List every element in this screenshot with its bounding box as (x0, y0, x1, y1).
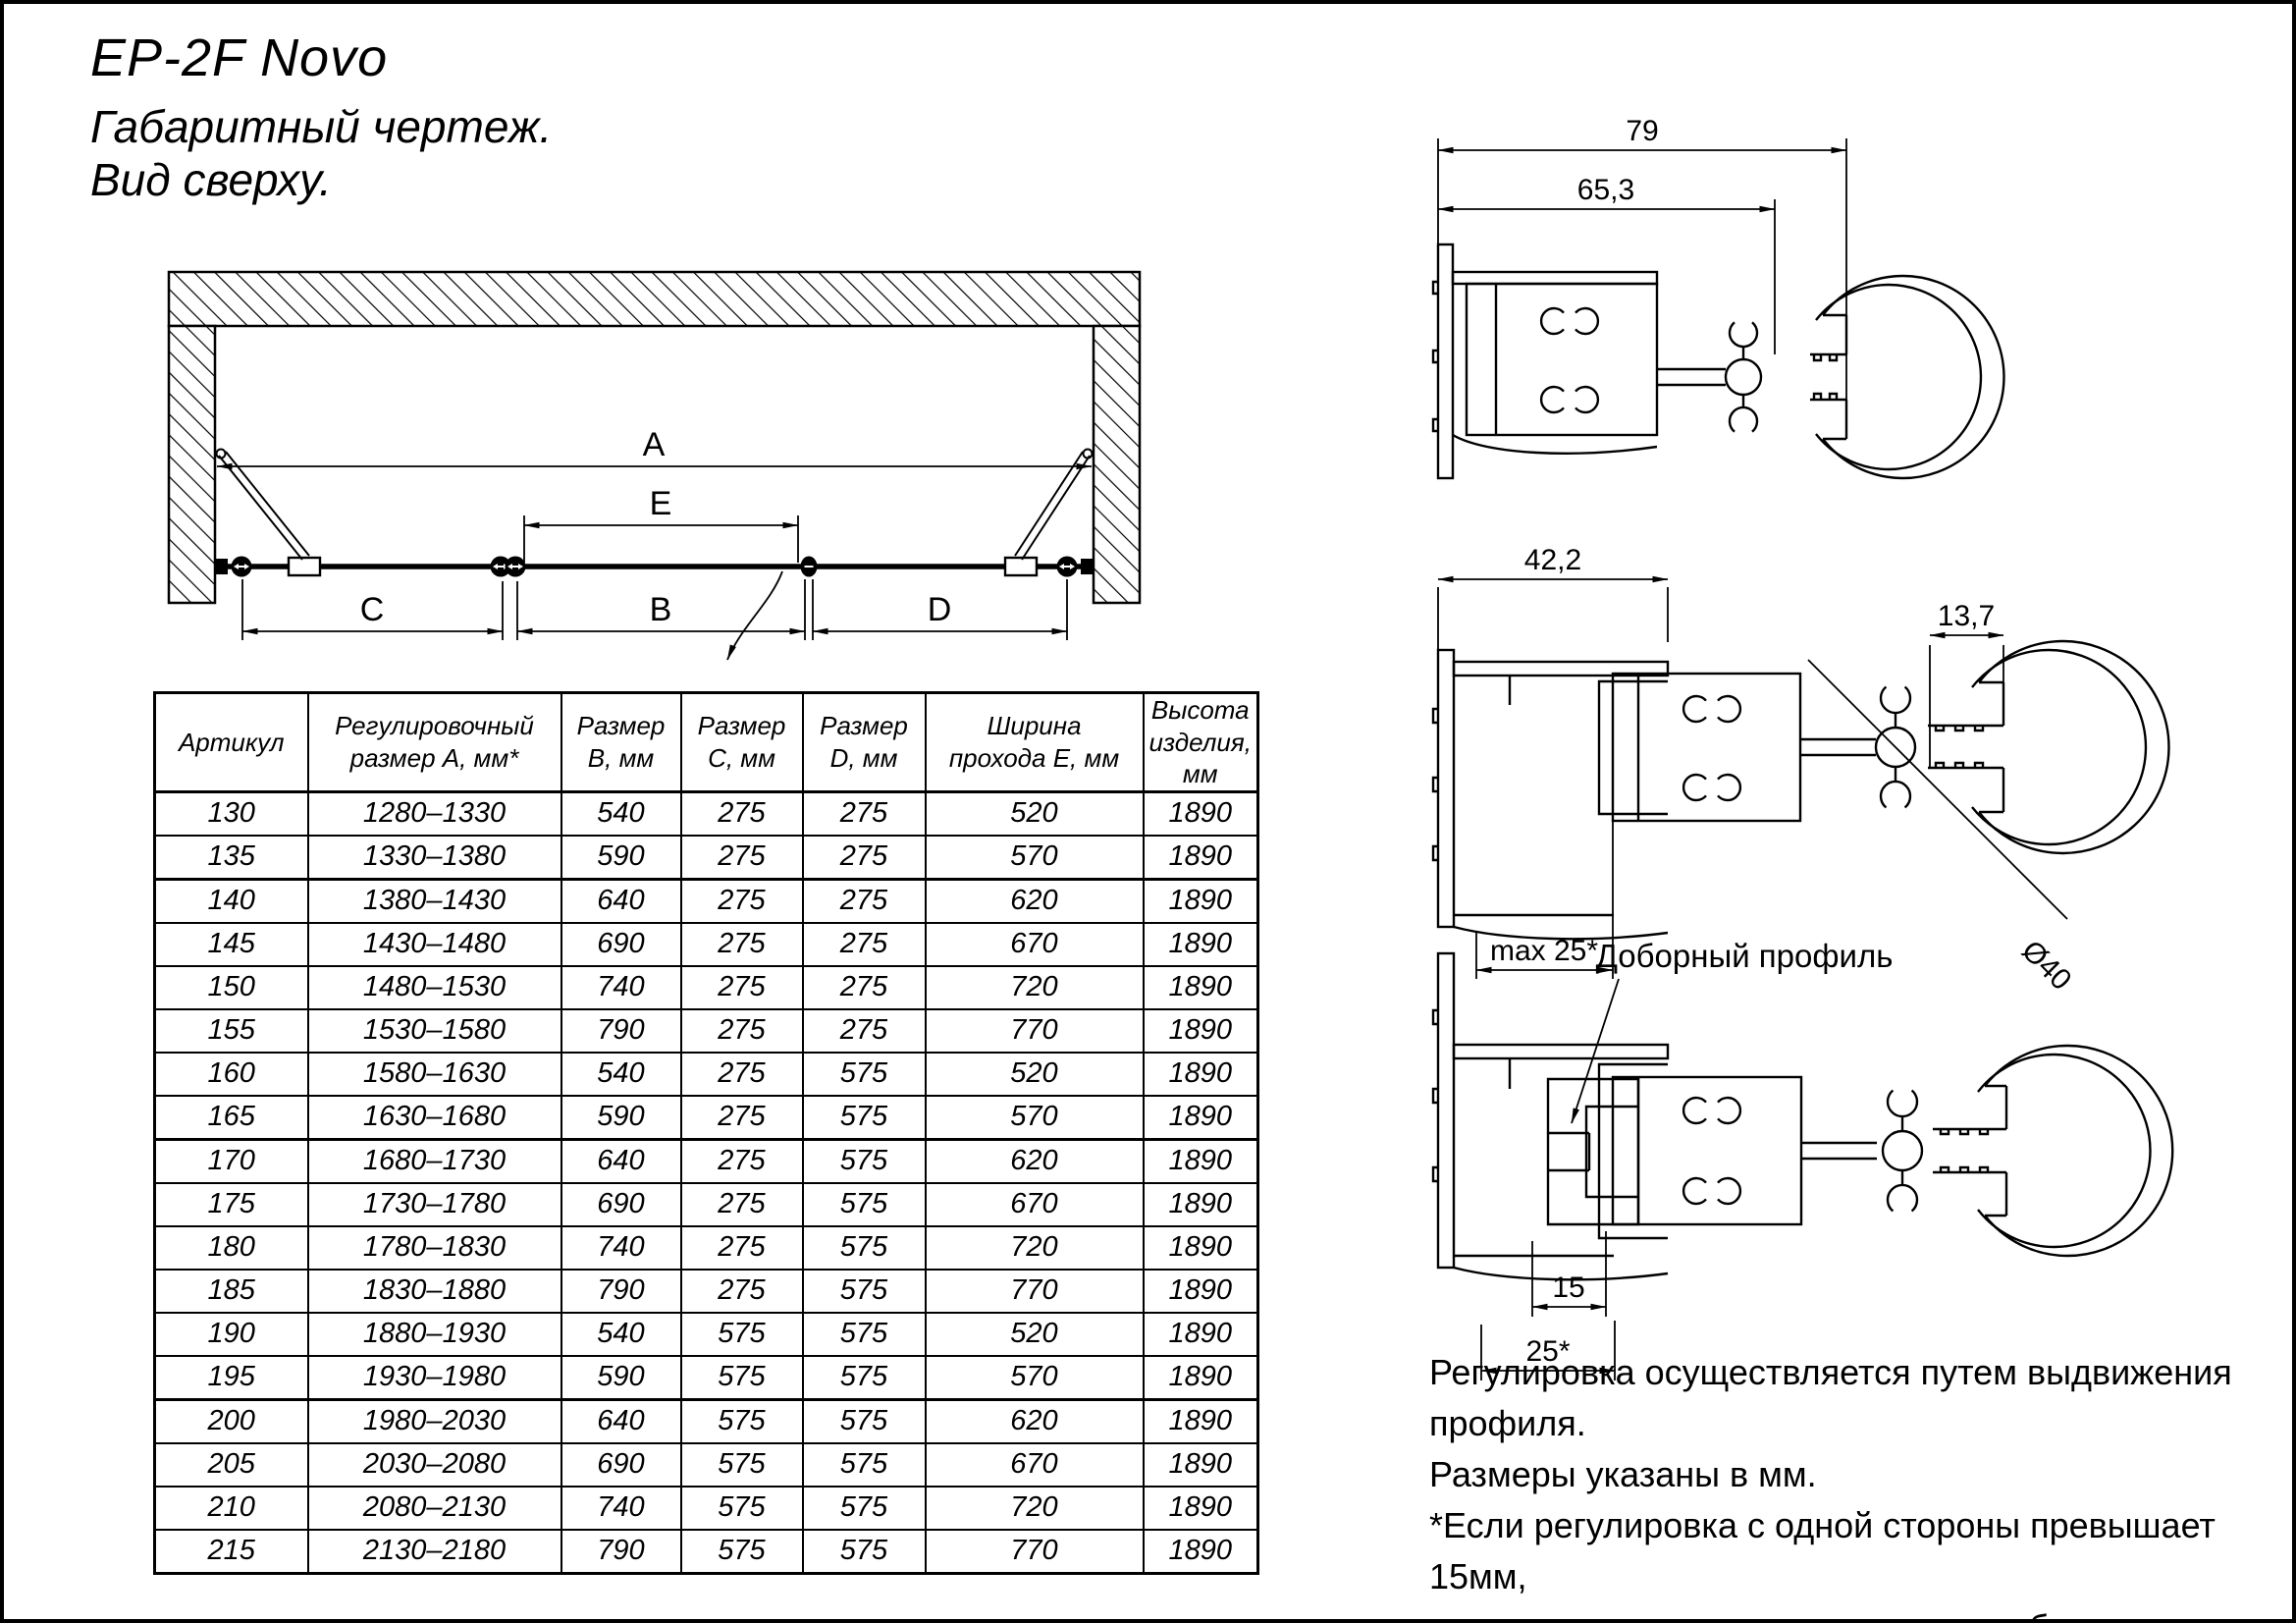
table-cell: 1890 (1144, 1270, 1258, 1313)
table-cell: 540 (561, 1313, 681, 1356)
table-cell: 275 (803, 836, 926, 880)
pivot-left (232, 557, 252, 577)
table-cell: 520 (926, 1053, 1144, 1096)
dim-label-15: 15 (1552, 1271, 1584, 1304)
brace-clamp-right (1005, 558, 1037, 575)
col-header-size-c: Размер C, мм (681, 693, 803, 792)
table-cell: 275 (681, 1183, 803, 1226)
table-row: 1401380–14306402752756201890 (155, 879, 1258, 923)
page-title: EP-2F Novo (90, 27, 388, 88)
table-cell: 1880–1930 (308, 1313, 561, 1356)
table-cell: 275 (681, 1226, 803, 1270)
table-row: 2052030–20806905755756701890 (155, 1443, 1258, 1487)
wall-left (169, 326, 215, 603)
table-cell: 640 (561, 879, 681, 923)
table-cell: 770 (926, 1270, 1144, 1313)
table-cell: 1890 (1144, 879, 1258, 923)
table-cell: 720 (926, 966, 1144, 1009)
table-cell: 575 (803, 1139, 926, 1183)
table-row: 1751730–17806902755756701890 (155, 1183, 1258, 1226)
dim-label-13-7: 13,7 (1938, 600, 1995, 632)
wall-bracket-right (1081, 559, 1094, 574)
table-cell: 210 (155, 1487, 308, 1530)
pivot-small (801, 557, 818, 577)
dim-label-b: B (650, 591, 672, 628)
extension-profile-callout: Доборный профиль (1596, 938, 1894, 974)
table-cell: 670 (926, 1443, 1144, 1487)
table-cell: 1330–1380 (308, 836, 561, 880)
table-cell: 690 (561, 923, 681, 966)
table-cell: 275 (681, 966, 803, 1009)
table-cell: 575 (681, 1399, 803, 1443)
note-adjustment: Регулировка осуществляется путем выдвиже… (1429, 1347, 2292, 1500)
drawing-sheet: EP-2F Novo Габаритный чертеж. Вид сверху… (0, 0, 2296, 1623)
note-asterisk: *Если регулировка с одной стороны превыш… (1429, 1500, 2292, 1623)
table-cell: 570 (926, 1356, 1144, 1400)
table-cell: 690 (561, 1443, 681, 1487)
table-cell: 165 (155, 1096, 308, 1140)
table-cell: 275 (803, 791, 926, 836)
table-cell: 575 (803, 1356, 926, 1400)
table-cell: 575 (681, 1487, 803, 1530)
table-cell: 1480–1530 (308, 966, 561, 1009)
size-table-header: Артикул Регулировочный размер А, мм* Раз… (155, 693, 1258, 792)
table-cell: 1680–1730 (308, 1139, 561, 1183)
table-cell: 575 (803, 1530, 926, 1574)
table-cell: 1890 (1144, 923, 1258, 966)
table-cell: 575 (803, 1399, 926, 1443)
table-cell: 740 (561, 1487, 681, 1530)
table-cell: 790 (561, 1270, 681, 1313)
table-cell: 180 (155, 1226, 308, 1270)
table-cell: 770 (926, 1530, 1144, 1574)
pivot-profile-middle (1876, 641, 2168, 853)
table-cell: 540 (561, 1053, 681, 1096)
dim-label-d: D (928, 591, 952, 628)
table-cell: 275 (681, 879, 803, 923)
table-cell: 770 (926, 1009, 1144, 1053)
table-cell: 2080–2130 (308, 1487, 561, 1530)
table-cell: 1580–1630 (308, 1053, 561, 1096)
table-cell: 740 (561, 1226, 681, 1270)
table-cell: 275 (681, 923, 803, 966)
table-cell: 575 (803, 1053, 926, 1096)
dims-top-profile (1438, 138, 1846, 402)
col-header-article: Артикул (155, 693, 308, 792)
table-cell: 1890 (1144, 1530, 1258, 1574)
table-cell: 570 (926, 1096, 1144, 1140)
table-cell: 275 (803, 966, 926, 1009)
table-cell: 1890 (1144, 1399, 1258, 1443)
table-cell: 1890 (1144, 1226, 1258, 1270)
page-subtitle-line2: Вид сверху. (90, 153, 332, 206)
table-cell: 690 (561, 1183, 681, 1226)
table-row: 1501480–15307402752757201890 (155, 966, 1258, 1009)
table-cell: 275 (681, 836, 803, 880)
table-cell: 1930–1980 (308, 1356, 561, 1400)
ext-lines-e (524, 515, 798, 563)
table-cell: 575 (803, 1313, 926, 1356)
door-profile-middle (1613, 674, 1876, 821)
col-header-size-d: Размер D, мм (803, 693, 926, 792)
table-cell: 1890 (1144, 1183, 1258, 1226)
table-cell: 275 (681, 1053, 803, 1096)
pivot-right (1057, 557, 1078, 577)
table-cell: 1890 (1144, 966, 1258, 1009)
table-row: 1701680–17306402755756201890 (155, 1139, 1258, 1183)
table-cell: 150 (155, 966, 308, 1009)
table-cell: 620 (926, 879, 1144, 923)
table-cell: 790 (561, 1009, 681, 1053)
table-cell: 1780–1830 (308, 1226, 561, 1270)
col-header-size-b: Размер B, мм (561, 693, 681, 792)
table-cell: 620 (926, 1399, 1144, 1443)
table-cell: 1830–1880 (308, 1270, 561, 1313)
table-cell: 575 (681, 1313, 803, 1356)
table-cell: 575 (681, 1356, 803, 1400)
table-row: 2152130–21807905755757701890 (155, 1530, 1258, 1574)
dim-label-79: 79 (1626, 115, 1658, 147)
table-cell: 575 (803, 1096, 926, 1140)
table-row: 1351330–13805902752755701890 (155, 836, 1258, 880)
dim-label-65-3: 65,3 (1577, 174, 1634, 206)
wall-profile-middle (1433, 650, 1668, 939)
diameter-leader-line (1808, 660, 2067, 919)
table-cell: 2130–2180 (308, 1530, 561, 1574)
table-cell: 640 (561, 1139, 681, 1183)
table-cell: 275 (803, 879, 926, 923)
table-cell: 1890 (1144, 1053, 1258, 1096)
table-cell: 1890 (1144, 836, 1258, 880)
table-cell: 1890 (1144, 1139, 1258, 1183)
table-cell: 2030–2080 (308, 1443, 561, 1487)
table-cell: 1890 (1144, 1487, 1258, 1530)
table-cell: 1280–1330 (308, 791, 561, 836)
table-cell: 275 (681, 1139, 803, 1183)
table-cell: 575 (681, 1443, 803, 1487)
table-cell: 275 (681, 791, 803, 836)
table-cell: 215 (155, 1530, 308, 1574)
table-cell: 790 (561, 1530, 681, 1574)
table-row: 2102080–21307405755757201890 (155, 1487, 1258, 1530)
dim-label-42-2: 42,2 (1524, 544, 1581, 576)
table-cell: 590 (561, 836, 681, 880)
note-line-3: *Если регулировка с одной стороны превыш… (1429, 1500, 2292, 1602)
note-line-4: то рекомендуется использование доборного… (1429, 1602, 2292, 1623)
dims-middle-profile (1438, 579, 2067, 979)
table-cell: 1890 (1144, 1313, 1258, 1356)
table-cell: 575 (681, 1530, 803, 1574)
table-cell: 520 (926, 791, 1144, 836)
table-cell: 1630–1680 (308, 1096, 561, 1140)
table-cell: 275 (803, 923, 926, 966)
page-subtitle-line1: Габаритный чертеж. (90, 100, 552, 153)
table-cell: 1980–2030 (308, 1399, 561, 1443)
pivot-center-b (506, 557, 526, 577)
table-cell: 590 (561, 1356, 681, 1400)
table-row: 1301280–13305402752755201890 (155, 791, 1258, 836)
table-row: 1951930–19805905755755701890 (155, 1356, 1258, 1400)
table-cell: 640 (561, 1399, 681, 1443)
table-cell: 1380–1430 (308, 879, 561, 923)
dim-label-a: A (643, 426, 666, 463)
plan-view-drawing: A E C B D (136, 257, 1187, 704)
table-cell: 1890 (1144, 1356, 1258, 1400)
table-body: 1301280–133054027527552018901351330–1380… (155, 791, 1258, 1573)
table-cell: 720 (926, 1226, 1144, 1270)
table-cell: 145 (155, 923, 308, 966)
table-cell: 275 (681, 1270, 803, 1313)
table-cell: 575 (803, 1270, 926, 1313)
col-header-adjust-a: Регулировочный размер А, мм* (308, 693, 561, 792)
dim-label-c: C (360, 591, 385, 628)
table-cell: 1530–1580 (308, 1009, 561, 1053)
table-cell: 275 (803, 1009, 926, 1053)
table-cell: 1730–1780 (308, 1183, 561, 1226)
door-swing-leader-arrow (727, 571, 782, 660)
table-cell: 140 (155, 879, 308, 923)
pivot-profile-top (1726, 276, 2003, 478)
table-row: 1651630–16805902755755701890 (155, 1096, 1258, 1140)
table-cell: 135 (155, 836, 308, 880)
note-line-2: Размеры указаны в мм. (1429, 1449, 2292, 1500)
table-cell: 575 (803, 1183, 926, 1226)
table-cell: 1890 (1144, 1096, 1258, 1140)
extension-profile (1548, 1079, 1638, 1224)
table-cell: 740 (561, 966, 681, 1009)
col-header-passage-e: Ширина прохода Е, мм (926, 693, 1144, 792)
profile-section-top: 79 65,3 (1417, 97, 1898, 529)
table-cell: 570 (926, 836, 1144, 880)
wall-bracket-left (215, 559, 228, 574)
table-cell: 205 (155, 1443, 308, 1487)
table-cell: 1430–1480 (308, 923, 561, 966)
wall-profile-top (1433, 244, 1726, 478)
wall-top (169, 272, 1140, 326)
table-cell: 175 (155, 1183, 308, 1226)
table-row: 1901880–19305405755755201890 (155, 1313, 1258, 1356)
table-cell: 540 (561, 791, 681, 836)
size-table: Артикул Регулировочный размер А, мм* Раз… (153, 691, 1259, 1575)
table-cell: 185 (155, 1270, 308, 1313)
table-cell: 195 (155, 1356, 308, 1400)
table-cell: 200 (155, 1399, 308, 1443)
table-cell: 1890 (1144, 1009, 1258, 1053)
wall-right (1094, 326, 1140, 603)
table-cell: 190 (155, 1313, 308, 1356)
table-cell: 670 (926, 1183, 1144, 1226)
table-cell: 155 (155, 1009, 308, 1053)
table-cell: 575 (803, 1226, 926, 1270)
table-row: 1801780–18307402755757201890 (155, 1226, 1258, 1270)
brace-clamp-left (289, 558, 320, 575)
table-cell: 160 (155, 1053, 308, 1096)
table-cell: 575 (803, 1487, 926, 1530)
table-row: 1451430–14806902752756701890 (155, 923, 1258, 966)
table-cell: 1890 (1144, 1443, 1258, 1487)
table-cell: 275 (681, 1009, 803, 1053)
table-cell: 590 (561, 1096, 681, 1140)
table-cell: 670 (926, 923, 1144, 966)
table-row: 2001980–20306405755756201890 (155, 1399, 1258, 1443)
table-row: 1601580–16305402755755201890 (155, 1053, 1258, 1096)
col-header-height: Высота изделия, мм (1144, 693, 1258, 792)
table-row: 1551530–15807902752757701890 (155, 1009, 1258, 1053)
dim-label-e: E (650, 485, 672, 522)
table-cell: 520 (926, 1313, 1144, 1356)
door-profile-bottom (1613, 1077, 1877, 1224)
table-cell: 170 (155, 1139, 308, 1183)
table-cell: 620 (926, 1139, 1144, 1183)
table-row: 1851830–18807902755757701890 (155, 1270, 1258, 1313)
wall-profile-bottom (1433, 953, 1668, 1279)
pivot-profile-bottom (1883, 1046, 2172, 1256)
table-cell: 275 (681, 1096, 803, 1140)
table-cell: 1890 (1144, 791, 1258, 836)
table-cell: 720 (926, 1487, 1144, 1530)
table-cell: 130 (155, 791, 308, 836)
table-cell: 575 (803, 1443, 926, 1487)
note-line-1: Регулировка осуществляется путем выдвиже… (1429, 1347, 2292, 1449)
